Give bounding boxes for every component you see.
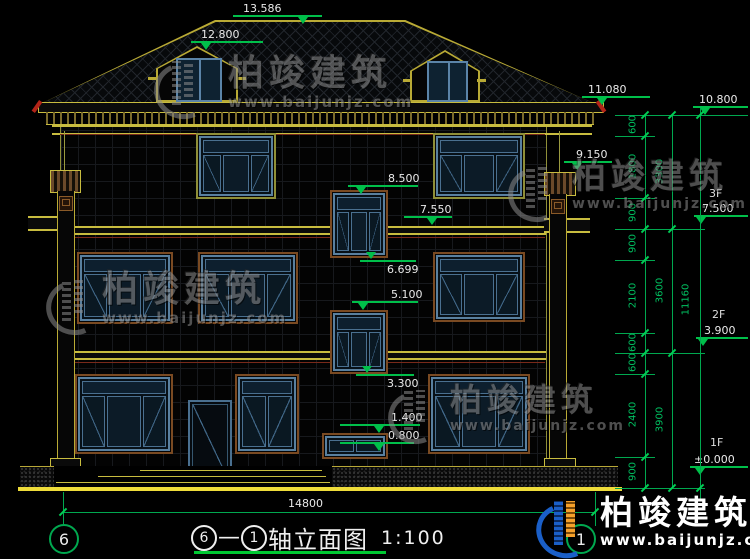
right-pilaster-capital [544, 172, 576, 196]
window-transom [435, 381, 523, 394]
step-line [56, 482, 330, 483]
pane [143, 274, 166, 317]
pane [440, 274, 462, 315]
red-trim-line [60, 362, 330, 363]
ground-line [18, 487, 622, 491]
window-frame [431, 377, 527, 451]
window-transom [82, 381, 166, 394]
brand-text: 柏竣建筑 www.baijunjz.com [600, 496, 750, 549]
elev-label-ridge: 13.586 [243, 2, 282, 15]
window-stair-upper [330, 190, 388, 258]
floor-label-1f: 1F [710, 436, 723, 449]
pane [369, 332, 381, 367]
pane [231, 274, 265, 317]
elev-label-win3f: 8.500 [388, 172, 420, 185]
window-sashes [84, 274, 166, 317]
pane [496, 274, 518, 315]
elev-label-smallwin-top: 1.400 [391, 411, 423, 424]
pane [462, 396, 497, 447]
window-sashes [337, 332, 381, 367]
left-dormer-wing [148, 77, 158, 80]
title-text: 轴立面图 [268, 520, 368, 555]
floor-label-2f: 2F [712, 308, 725, 321]
elev-triangle [356, 187, 366, 194]
pane [440, 155, 462, 192]
window-frame [80, 255, 170, 321]
title-axis-start: 6 [191, 525, 217, 551]
elev-triangle [374, 426, 384, 433]
elev-label-dormer: 12.800 [201, 28, 240, 41]
window-transom [337, 197, 381, 210]
window-sashes [337, 212, 381, 251]
window-3f-center [196, 133, 276, 199]
window-sashes [242, 396, 292, 447]
ornament-inset [554, 202, 562, 209]
window-transom [205, 259, 291, 272]
brand-url: www.baijunjz.com [600, 531, 750, 549]
pane [464, 274, 495, 315]
elev-triangle [572, 163, 582, 170]
dim-value: 3900 [655, 398, 666, 442]
pane [84, 274, 107, 317]
window-2f-left [77, 252, 173, 324]
ground-dim-value: 14800 [288, 497, 323, 510]
axis-bubble-6: 6 [49, 524, 79, 554]
window-transom [440, 140, 518, 153]
ground-dim-line [63, 512, 595, 513]
right-pilaster-ornament [551, 199, 565, 214]
floor-band-3f-right [388, 226, 546, 235]
right-pilaster-shaft [549, 194, 567, 458]
title-axis-end: 1 [241, 525, 267, 551]
elev-triangle [298, 17, 308, 24]
window-frame [436, 255, 522, 319]
dim-value: 600 [628, 103, 639, 147]
pane [351, 332, 367, 367]
elev-triangle [201, 43, 211, 50]
dim-value: 2400 [628, 393, 639, 437]
window-frame [333, 313, 385, 371]
entrance-steps [54, 466, 332, 487]
window-1f-center [235, 374, 299, 454]
elev-label-capital: 9.150 [576, 148, 608, 161]
elev-line [360, 260, 416, 262]
window-transom [440, 259, 518, 272]
window-transom [203, 140, 269, 153]
dim-value: 600 [628, 341, 639, 385]
axis-number: 6 [59, 530, 69, 549]
left-pilaster-capital [50, 170, 81, 193]
brand-name: 柏竣建筑 [600, 496, 750, 531]
dim-value: 2100 [628, 274, 639, 318]
elev-triangle [358, 303, 368, 310]
elev-triangle [696, 217, 706, 224]
window-sashes [205, 274, 291, 317]
dim-chain-line-3 [700, 108, 701, 500]
drawing-title: 6 — 1 轴立面图 1:100 [190, 520, 446, 555]
pane [143, 396, 166, 447]
window-frame [238, 377, 296, 451]
window-mullion [199, 60, 201, 100]
red-trim-line [388, 362, 545, 363]
pane [369, 212, 381, 251]
left-pilaster-ornament [59, 196, 73, 211]
left-pilaster-shaft [57, 191, 75, 458]
window-frame [333, 193, 385, 255]
window-2f-right [433, 252, 525, 322]
logo-bar [554, 501, 563, 545]
red-trim-line [388, 237, 545, 238]
hip-roof [40, 22, 596, 104]
right-dormer-wing [403, 79, 412, 82]
axis-number: 1 [576, 530, 586, 549]
elev-line [356, 374, 414, 376]
pane [251, 155, 269, 192]
dim-chain-line-2 [672, 115, 673, 488]
pane [109, 274, 141, 317]
title-scale: 1:100 [381, 527, 446, 549]
pane [107, 396, 140, 447]
pane [242, 396, 266, 447]
elev-label-stair2-top: 5.100 [391, 288, 423, 301]
ornament-inset [62, 199, 70, 206]
pane [205, 274, 229, 317]
window-sashes [440, 155, 518, 192]
elev-line [582, 96, 650, 98]
pane [268, 396, 292, 447]
window-1f-right [428, 374, 530, 454]
pane [337, 332, 349, 367]
floor-band-3f-left [58, 226, 330, 235]
elev-triangle [597, 98, 607, 105]
window-transom [242, 381, 292, 394]
left-pilaster-line [64, 131, 65, 171]
left-dormer-window [176, 58, 222, 102]
pane [351, 212, 367, 251]
pane [82, 396, 105, 447]
window-mullion [448, 63, 450, 100]
window-stair-lower [330, 310, 388, 374]
floor-elev-3f: 7.500 [702, 202, 734, 215]
elev-triangle [374, 444, 384, 451]
window-transom [84, 259, 166, 272]
elev-line [233, 15, 322, 17]
window-frame [436, 136, 522, 196]
elev-label-slab3: 7.550 [420, 203, 452, 216]
elev-label-stair-sill: 6.699 [387, 263, 419, 276]
dim-value: 3600 [655, 269, 666, 313]
dim-value: 3300 [655, 150, 666, 194]
floor-band-2f-left [58, 351, 330, 360]
window-sashes [440, 274, 518, 315]
dim-value: 1800 [628, 145, 639, 189]
step-line [98, 476, 326, 477]
right-pilaster-line [559, 131, 560, 172]
window-1f-left [75, 374, 173, 454]
left-dormer-wing [236, 77, 246, 80]
pane [203, 155, 221, 192]
dim-value: 11160 [681, 278, 692, 322]
title-dash: — [218, 525, 240, 550]
dim-value: 900 [628, 450, 639, 494]
window-sashes [435, 396, 523, 447]
pane [498, 396, 523, 447]
pane [496, 155, 518, 192]
axis-bubble-1: 1 [566, 524, 596, 554]
floor-band-2f-right [388, 351, 546, 360]
elev-triangle [366, 252, 376, 259]
right-dormer-wing [477, 79, 486, 82]
eave-dentils [46, 112, 594, 125]
floor-elev-2f: 3.900 [704, 324, 736, 337]
elev-triangle [427, 218, 437, 225]
elev-label-smallwin-sill: 0.800 [388, 429, 420, 442]
elev-label-stair2-sill: 3.300 [387, 377, 419, 390]
pane [435, 396, 460, 447]
elev-label-parapet: 10.800 [699, 93, 738, 106]
pane [464, 155, 495, 192]
window-3f-right [433, 133, 525, 199]
window-frame [199, 136, 273, 196]
dim-chain-line-1 [645, 115, 646, 488]
window-frame [201, 255, 295, 321]
window-2f-center [198, 252, 298, 324]
window-sashes [203, 155, 269, 192]
pane [337, 212, 349, 251]
right-dormer-window [427, 61, 468, 102]
floor-label-3f: 3F [709, 187, 722, 200]
dim-value: 900 [628, 222, 639, 266]
elev-triangle [362, 366, 372, 373]
window-transom [337, 317, 381, 330]
elev-label-eave: 11.080 [588, 83, 627, 96]
pane [267, 274, 291, 317]
window-sashes [82, 396, 166, 447]
pane [223, 155, 249, 192]
red-trim-line [60, 237, 330, 238]
window-frame [78, 377, 170, 451]
brand-logo: 柏竣建筑 www.baijunjz.com [534, 496, 750, 556]
title-underline [194, 551, 386, 554]
step-line [140, 470, 322, 471]
elevation-drawing-canvas: 13.586 12.800 11.080 10.800 9.150 8.500 … [0, 0, 750, 559]
